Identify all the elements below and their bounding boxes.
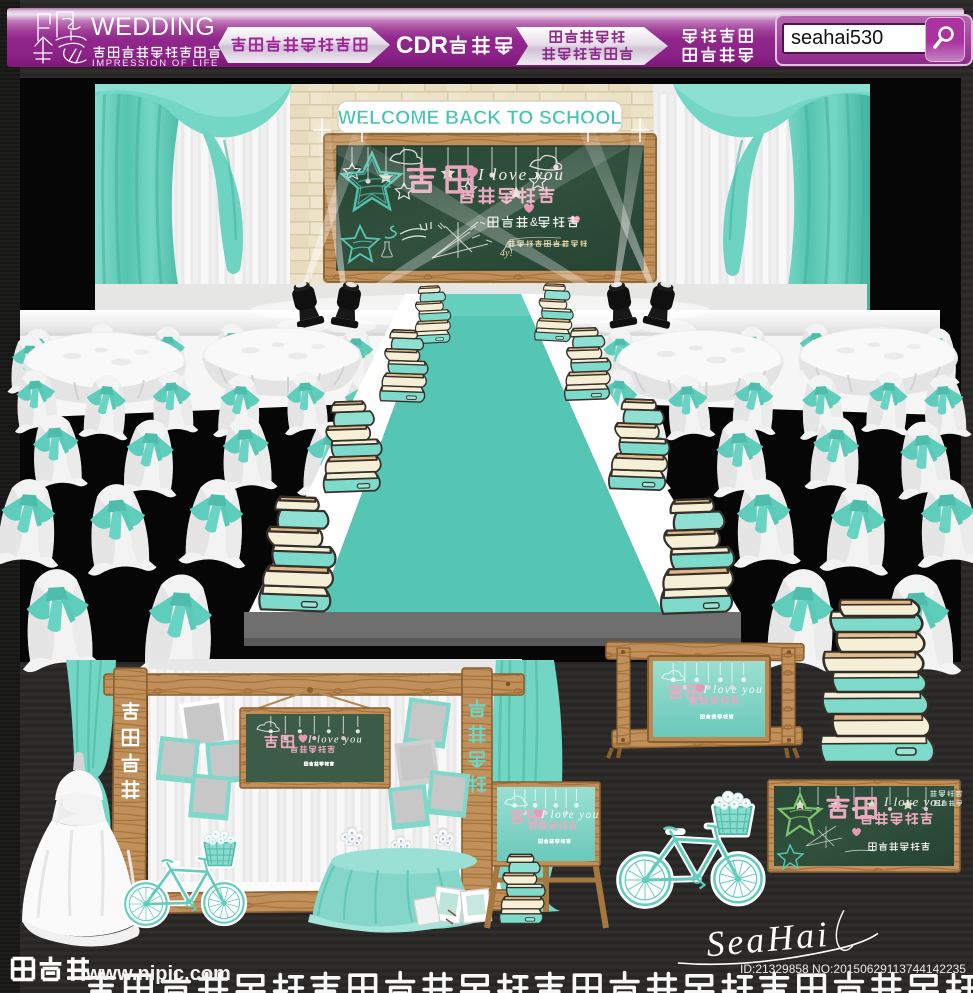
svg-text:WELCOME BACK TO SCHOOL: WELCOME BACK TO SCHOOL	[338, 107, 623, 129]
svg-text:I love you: I love you	[702, 684, 763, 696]
svg-text:4y!: 4y!	[500, 248, 513, 259]
svg-text:I love you: I love you	[307, 735, 363, 746]
svg-text:www.nipic.com: www.nipic.com	[85, 963, 231, 985]
svg-text:ID:21329858 NO:201506291137441: ID:21329858 NO:20150629113744142235	[740, 962, 966, 976]
svg-text:&: &	[530, 215, 538, 229]
svg-text:I love you: I love you	[540, 809, 600, 821]
svg-text:SeaHai: SeaHai	[705, 914, 832, 965]
